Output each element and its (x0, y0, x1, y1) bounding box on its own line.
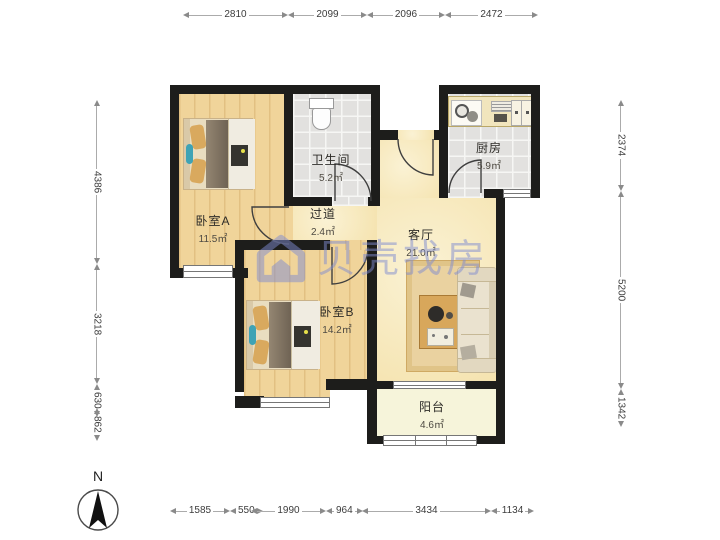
room-label-bathroom: 卫生间 5.2㎡ (311, 151, 350, 184)
window-balcony (383, 435, 477, 446)
window-bedroom-a (183, 265, 233, 278)
dimension-left: 3218 (90, 264, 103, 384)
dimension-bottom: 964 (326, 505, 362, 517)
room-name: 卫生间 (311, 151, 350, 168)
compass-north-label: N (75, 468, 121, 484)
dimension-value: 2099 (314, 10, 340, 20)
dimension-value: 3434 (413, 506, 439, 516)
dimension-top: 2472 (445, 9, 538, 21)
compass-icon (75, 486, 121, 532)
room-label-bedroom-b: 卧室B 14.2㎡ (319, 303, 354, 336)
dimension-value: 2472 (478, 10, 504, 20)
window-mullion (446, 436, 447, 445)
dimension-top: 2810 (183, 9, 288, 21)
room-area: 11.5㎡ (195, 230, 230, 245)
dimension-right: 1342 (614, 389, 627, 440)
dimension-value: 1585 (187, 506, 213, 516)
dimension-bottom: 1134 (491, 505, 534, 517)
room-label-bedroom-a: 卧室A 11.5㎡ (195, 212, 230, 245)
balcony-sliding-door[interactable] (393, 381, 466, 389)
dimension-value: 3218 (92, 311, 102, 337)
dimension-bottom: 550 (230, 505, 251, 517)
window-mullion (415, 436, 416, 445)
dimension-right: 5200 (614, 191, 627, 389)
entry-door (398, 139, 433, 175)
dimension-value: 2810 (222, 10, 248, 20)
window-kitchen (503, 189, 531, 198)
dimension-top: 2099 (288, 9, 367, 21)
dimension-value: 2096 (393, 10, 419, 20)
bedroom-b-door (332, 247, 368, 284)
dimension-bottom: 3434 (362, 505, 491, 517)
room-label-balcony: 阳台 4.6㎡ (419, 398, 445, 431)
room-name: 过道 (310, 205, 336, 222)
compass: N (75, 468, 121, 537)
bedroom-a-door (252, 207, 289, 244)
dimension-left: 630 (90, 384, 103, 408)
room-area: 5.9㎡ (476, 157, 502, 172)
room-area: 4.6㎡ (419, 416, 445, 431)
room-area: 5.2㎡ (311, 169, 350, 184)
dimension-right: 2374 (614, 100, 627, 191)
dimension-bottom: 1585 (170, 505, 230, 517)
room-name: 厨房 (476, 139, 502, 156)
dimension-value: 5200 (616, 277, 626, 303)
room-area: 21.0㎡ (406, 244, 435, 259)
dimension-left: 4386 (90, 100, 103, 264)
window-bedroom-b (260, 397, 330, 408)
dimension-left: 862 (90, 408, 103, 440)
floorplan-canvas: 卧室A 11.5㎡ 卫生间 5.2㎡ 过道 2.4㎡ 客厅 21.0㎡ 厨房 5… (0, 0, 720, 540)
room-area: 14.2㎡ (319, 321, 354, 336)
room-name: 卧室A (195, 212, 230, 229)
room-label-living-room: 客厅 21.0㎡ (406, 226, 435, 259)
room-name: 阳台 (419, 398, 445, 415)
dimension-value: 862 (92, 414, 102, 435)
dimension-value: 1134 (500, 506, 526, 516)
room-name: 客厅 (406, 226, 435, 243)
dimension-value: 964 (334, 506, 355, 516)
dimension-top: 2096 (367, 9, 445, 21)
room-area: 2.4㎡ (310, 223, 336, 238)
dimension-value: 1990 (275, 506, 301, 516)
room-label-kitchen: 厨房 5.9㎡ (476, 139, 502, 172)
dimension-value: 2374 (616, 132, 626, 158)
room-name: 卧室B (319, 303, 354, 320)
room-label-hallway: 过道 2.4㎡ (310, 205, 336, 238)
dimension-bottom: 1990 (251, 505, 326, 517)
dimension-value: 4386 (92, 169, 102, 195)
dimension-value: 1342 (616, 395, 626, 421)
door-arcs (0, 0, 720, 540)
